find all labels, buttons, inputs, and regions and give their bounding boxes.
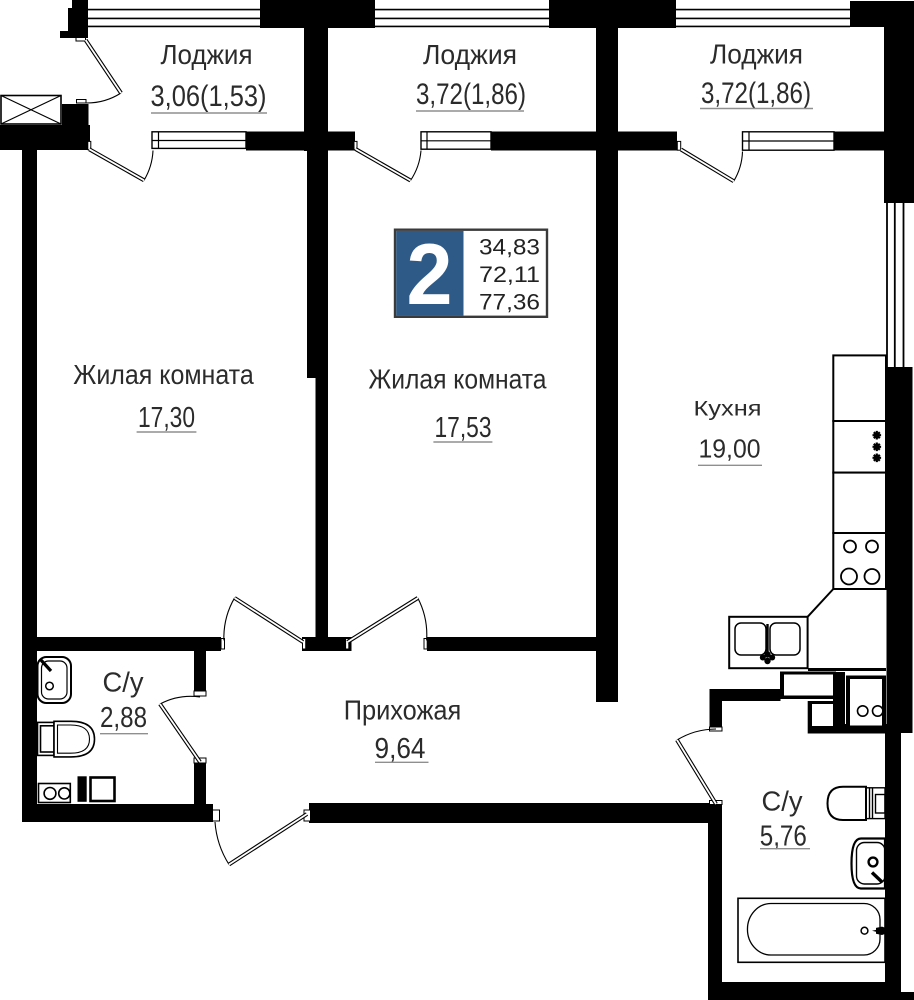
svg-text:72,11: 72,11 <box>479 262 540 287</box>
svg-text:3,06(1,53): 3,06(1,53) <box>151 80 267 113</box>
svg-text:Лоджия: Лоджия <box>423 39 517 70</box>
svg-text:С/у: С/у <box>762 786 803 817</box>
svg-text:9,64: 9,64 <box>375 733 426 765</box>
svg-text:С/у: С/у <box>103 667 144 698</box>
svg-text:34,83: 34,83 <box>479 234 540 259</box>
svg-text:Лоджия: Лоджия <box>161 39 253 70</box>
svg-text:19,00: 19,00 <box>699 436 761 464</box>
svg-text:3,72(1,86): 3,72(1,86) <box>416 78 526 111</box>
svg-text:2: 2 <box>407 227 453 323</box>
svg-text:2,88: 2,88 <box>100 702 147 734</box>
svg-text:Лоджия: Лоджия <box>710 39 803 70</box>
svg-text:Жилая комната: Жилая комната <box>73 359 254 390</box>
svg-text:5,76: 5,76 <box>760 821 807 853</box>
svg-text:77,36: 77,36 <box>479 290 540 315</box>
svg-text:Жилая комната: Жилая комната <box>369 364 547 395</box>
svg-text:Прихожая: Прихожая <box>344 695 462 726</box>
svg-text:3,72(1,86): 3,72(1,86) <box>701 77 811 110</box>
svg-text:17,30: 17,30 <box>138 402 195 434</box>
svg-text:17,53: 17,53 <box>435 412 492 444</box>
svg-text:Кухня: Кухня <box>694 397 762 421</box>
